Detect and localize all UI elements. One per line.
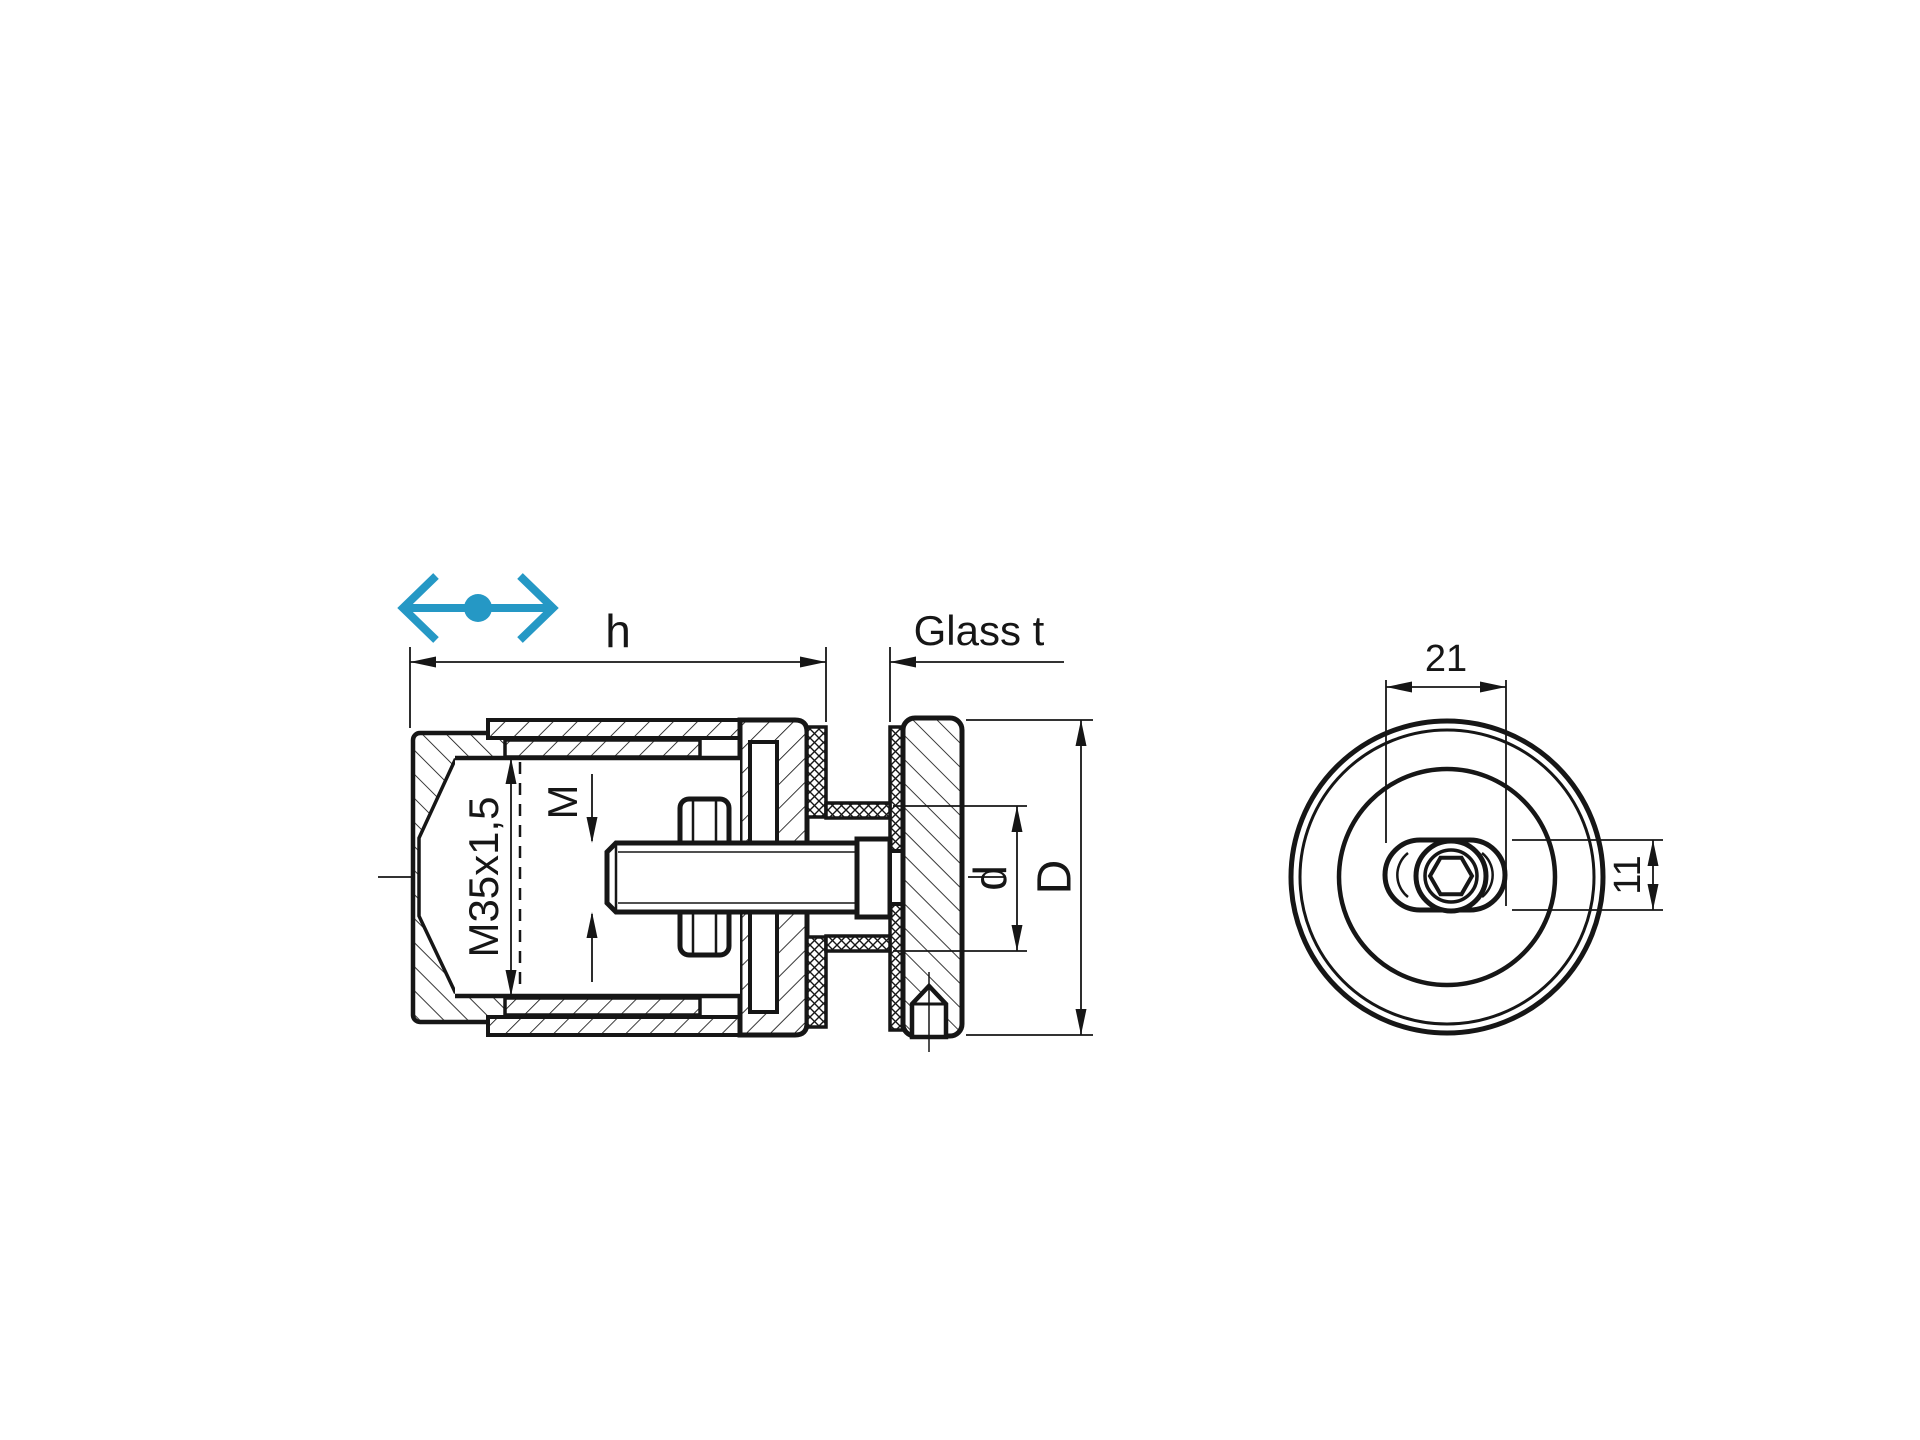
dim-label-m: M: [539, 785, 586, 820]
dim-label-thread: M35x1,5: [460, 796, 507, 957]
sleeve-step-bottom: [505, 998, 700, 1015]
front-view: 21 11: [1291, 638, 1663, 1033]
dim-label-d: d: [964, 865, 1016, 891]
technical-drawing: h Glass t M35x1,5 M d D: [0, 0, 1920, 1440]
sleeve-step-top: [505, 740, 700, 757]
stud-collar: [857, 839, 890, 917]
dim-label-glass-t: Glass t: [914, 607, 1045, 654]
sleeve-thread-band-bottom: [488, 1017, 740, 1035]
dim-label-h: h: [605, 605, 631, 657]
horizontal-move-arrow-icon: [403, 576, 553, 640]
dim-label-slot-width: 21: [1425, 638, 1467, 680]
threaded-stud: [607, 843, 857, 912]
move-arrow-dot: [464, 594, 492, 622]
dim-label-slot-height: 11: [1607, 855, 1649, 894]
sleeve-thread-band-top: [488, 720, 740, 738]
drawing-page: h Glass t M35x1,5 M d D: [0, 0, 1920, 1440]
dim-label-D: D: [1029, 860, 1082, 895]
hex-socket: [1430, 858, 1472, 894]
section-view: h Glass t M35x1,5 M d D: [378, 576, 1093, 1052]
